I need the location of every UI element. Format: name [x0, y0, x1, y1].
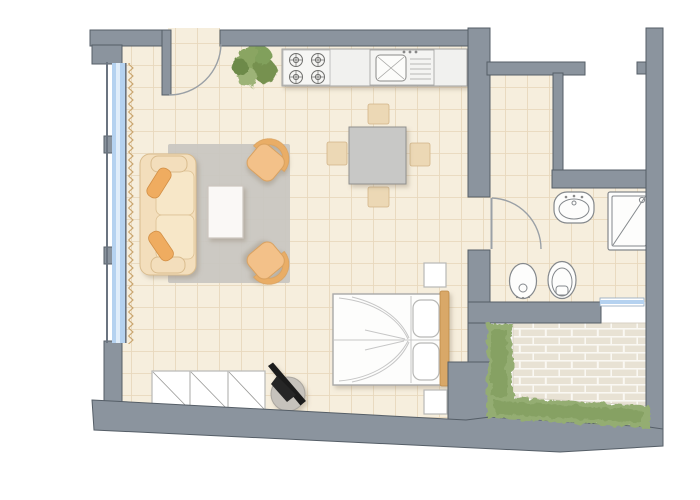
right-outer-wall	[646, 28, 663, 446]
curtain-zigzag	[128, 63, 137, 344]
top-wall-left	[90, 30, 168, 46]
dining-chair-left	[327, 142, 347, 165]
corridor-right-wall	[553, 73, 563, 173]
window-outer-line	[106, 62, 108, 343]
window-inner-line	[125, 63, 127, 343]
floor-plan-canvas	[0, 0, 700, 500]
bed-pillow	[413, 300, 439, 337]
right-room-wall-upper	[468, 28, 490, 197]
window-glass-highlight	[116, 63, 120, 343]
double-bed	[333, 291, 449, 386]
nightstand-lower	[424, 390, 447, 414]
dining-chair-right	[410, 143, 430, 166]
dining-chair-top	[368, 104, 389, 124]
washbasin	[554, 192, 594, 223]
sofa	[140, 154, 196, 275]
right-wall-nub	[637, 62, 646, 74]
sofa-armrest	[151, 156, 187, 172]
terrace-window	[600, 298, 644, 306]
kitchen-counter	[282, 49, 467, 86]
left-bottom-wall-block	[104, 341, 122, 403]
corridor-top-wall	[487, 62, 585, 75]
entrance-threshold-floor	[168, 28, 220, 46]
dining-chair-bottom	[368, 187, 389, 207]
shower	[608, 192, 650, 250]
entrance-door-leaf	[162, 30, 171, 95]
window-band-left	[106, 62, 137, 344]
coffee-table	[208, 186, 243, 238]
bed-pillow	[413, 343, 439, 380]
top-left-corner-wall	[92, 45, 122, 64]
top-wall-main	[220, 30, 490, 46]
right-room-wall-lower	[448, 362, 490, 420]
bathroom-top-wall	[552, 170, 647, 188]
corridor-floor	[489, 75, 553, 188]
bidet	[510, 264, 537, 300]
bidet-body	[510, 264, 537, 299]
door-threshold-floor	[468, 195, 490, 252]
dining-table	[349, 127, 406, 184]
terrace-brick-paving	[513, 323, 649, 406]
bathroom-bottom-wall	[468, 302, 601, 323]
toilet	[548, 262, 576, 299]
nightstand-upper	[424, 263, 446, 287]
